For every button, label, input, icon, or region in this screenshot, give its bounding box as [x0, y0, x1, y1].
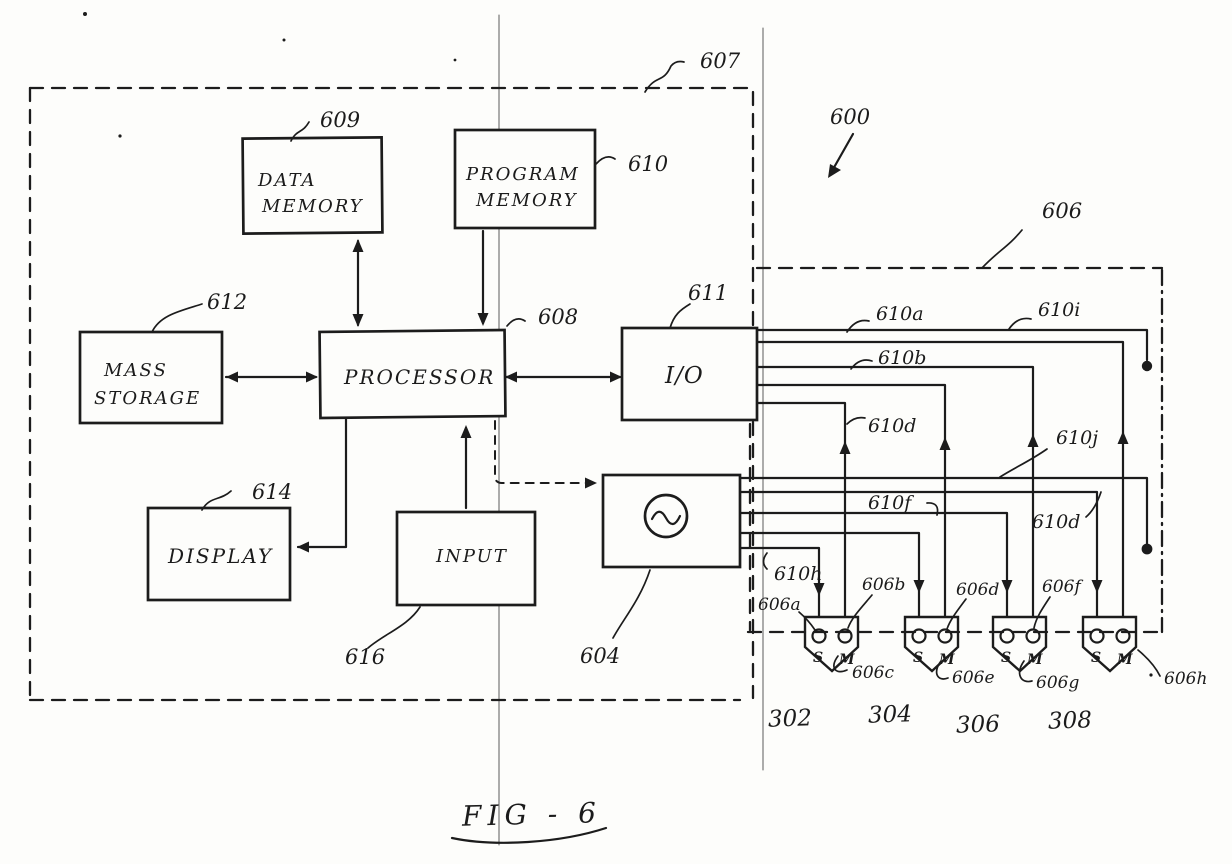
leader-610h [764, 553, 768, 569]
ref-608: 608 [538, 305, 578, 329]
jack-302-s-letter: S [813, 650, 823, 666]
label-610d2: 610d [1032, 511, 1080, 533]
label-606d: 606d [956, 580, 999, 600]
jack-304-m-letter: M [938, 652, 955, 668]
label-606c: 606c [852, 663, 894, 683]
ref-612: 612 [207, 290, 247, 314]
leader-610 [596, 157, 615, 164]
label-610d1: 610d [868, 415, 916, 437]
label-308: 308 [1048, 707, 1093, 735]
label-606h: 606h [1164, 669, 1207, 689]
patent-drawing-sheet: DATA MEMORY PROGRAM MEMORY MASS STORAGE … [0, 0, 1232, 864]
leader-604 [613, 570, 650, 638]
input-label: INPUT [435, 546, 508, 567]
caption-text: FIG - 6 [461, 796, 603, 833]
dashed-link-processor-oscillator [495, 421, 590, 483]
jack-304: S M [905, 617, 958, 671]
ref-616: 616 [345, 645, 385, 669]
leader-612 [152, 304, 202, 332]
leader-606 [982, 230, 1022, 268]
leader-606h [1138, 650, 1160, 676]
label-606a: 606a [758, 595, 801, 615]
leader-610d2 [1086, 492, 1101, 517]
jack-308-m-letter: M [1116, 652, 1133, 668]
ref-606: 606 [1042, 199, 1082, 223]
figure-caption: FIG - 6 [452, 796, 606, 843]
jack-304-s-letter: S [913, 650, 923, 666]
oscillator-wires [740, 478, 1152, 629]
jack-308: S M [1083, 617, 1136, 671]
jack-308-s-letter: S [1091, 650, 1101, 666]
program-memory-label-2: MEMORY [475, 190, 578, 211]
component-boxes: DATA MEMORY PROGRAM MEMORY MASS STORAGE … [80, 130, 757, 605]
jack-306-m-letter: M [1026, 652, 1043, 668]
display-label: DISPLAY [167, 544, 273, 568]
leader-611 [670, 304, 690, 328]
label-610f: 610f [868, 492, 914, 514]
terminal-dot-lower [1142, 544, 1153, 555]
ref-611: 611 [688, 281, 728, 305]
label-606b: 606b [862, 575, 905, 595]
label-606f: 606f [1042, 577, 1083, 597]
label-304: 304 [868, 701, 913, 729]
label-610h: 610h [774, 563, 823, 585]
label-302: 302 [768, 705, 813, 733]
oscillator-box [603, 475, 740, 567]
data-memory-label-1: DATA [257, 170, 316, 191]
ref-600: 600 [830, 105, 870, 129]
ref-609: 609 [320, 108, 360, 132]
leader-608 [507, 319, 525, 326]
wire-610a [757, 330, 1147, 360]
port-numbers: 302 304 306 308 [768, 701, 1093, 739]
jack-306-s-letter: S [1001, 650, 1011, 666]
mass-storage-label-1: MASS [103, 360, 168, 381]
io-label: I/O [664, 363, 704, 389]
data-memory-label-2: MEMORY [261, 196, 364, 217]
processor-label: PROCESSOR [343, 365, 495, 389]
leader-610i [1009, 318, 1031, 329]
label-606e: 606e [952, 668, 995, 688]
ref-614: 614 [252, 480, 292, 504]
terminal-dot-upper [1142, 361, 1152, 371]
label-610i: 610i [1038, 299, 1080, 321]
ref-610: 610 [628, 152, 668, 176]
label-610b: 610b [878, 347, 926, 369]
jack-306: S M [993, 617, 1046, 671]
program-memory-label-1: PROGRAM [465, 164, 580, 185]
ref-604: 604 [580, 644, 620, 668]
leader-610j [1000, 449, 1047, 477]
leader-616 [368, 607, 420, 648]
wire-processor-display [298, 419, 346, 547]
leader-610d1 [847, 418, 865, 424]
arrow-600 [832, 134, 853, 171]
mass-storage-label-2: STORAGE [94, 388, 201, 409]
label-606g: 606g [1036, 673, 1079, 693]
label-610j: 610j [1056, 427, 1098, 449]
label-610a: 610a [876, 303, 924, 325]
label-306: 306 [956, 711, 1001, 739]
ref-607: 607 [700, 49, 741, 73]
figure-6-diagram: DATA MEMORY PROGRAM MEMORY MASS STORAGE … [0, 0, 1232, 864]
